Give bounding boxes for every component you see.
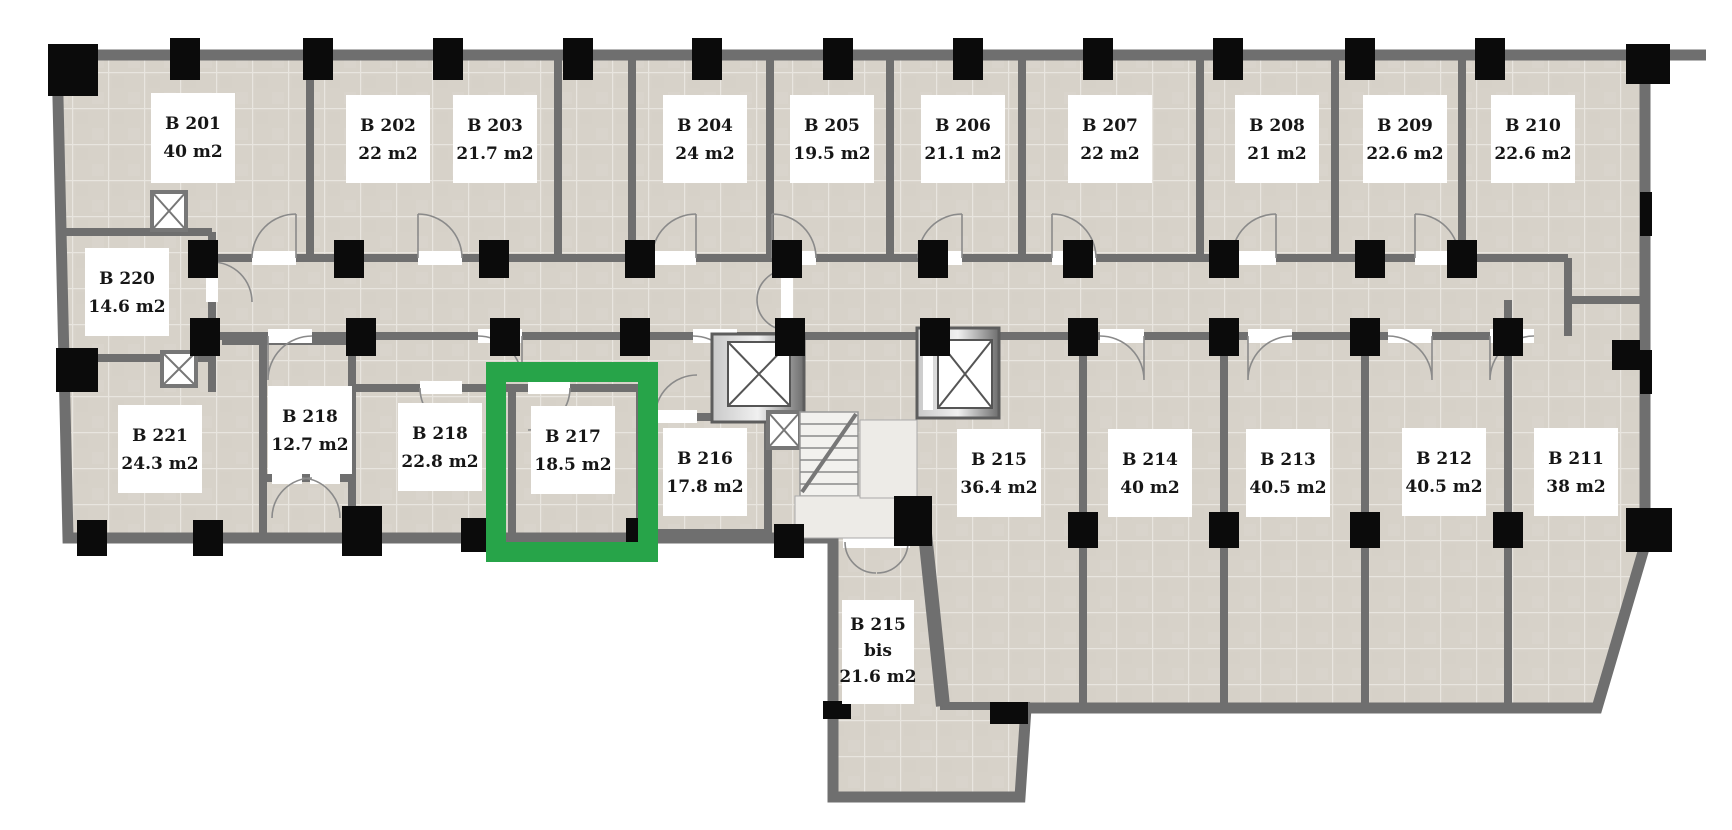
room-label-b206[interactable]: B 206 21.1 m2 — [921, 95, 1005, 183]
svg-text:38 m2: 38 m2 — [1546, 477, 1605, 497]
room-label-b218-small[interactable]: B 218 12.7 m2 — [268, 386, 352, 474]
svg-text:B 214: B 214 — [1122, 450, 1178, 470]
svg-text:B 216: B 216 — [677, 449, 733, 469]
room-label-b215[interactable]: B 215 36.4 m2 — [957, 429, 1041, 517]
svg-text:B 207: B 207 — [1082, 116, 1138, 136]
svg-text:B 202: B 202 — [360, 116, 416, 136]
svg-text:24 m2: 24 m2 — [675, 144, 734, 164]
svg-text:B 215: B 215 — [850, 615, 906, 635]
svg-text:40 m2: 40 m2 — [1120, 478, 1179, 498]
svg-text:B 208: B 208 — [1249, 116, 1305, 136]
svg-text:B 201: B 201 — [165, 114, 221, 134]
svg-text:21 m2: 21 m2 — [1247, 144, 1306, 164]
svg-text:40.5 m2: 40.5 m2 — [1405, 477, 1482, 497]
svg-text:B 218: B 218 — [282, 407, 338, 427]
room-label-b221[interactable]: B 221 24.3 m2 — [118, 405, 202, 493]
room-label-b214[interactable]: B 214 40 m2 — [1108, 429, 1192, 517]
svg-text:17.8 m2: 17.8 m2 — [666, 477, 743, 497]
svg-text:21.6 m2: 21.6 m2 — [839, 667, 916, 687]
room-label-b216[interactable]: B 216 17.8 m2 — [663, 428, 747, 516]
room-label-b210[interactable]: B 210 22.6 m2 — [1491, 95, 1575, 183]
svg-text:19.5 m2: 19.5 m2 — [793, 144, 870, 164]
room-label-b204[interactable]: B 204 24 m2 — [663, 95, 747, 183]
room-label-b211[interactable]: B 211 38 m2 — [1534, 428, 1618, 516]
room-label-b203[interactable]: B 203 21.7 m2 — [453, 95, 537, 183]
svg-text:22.8 m2: 22.8 m2 — [401, 452, 478, 472]
svg-text:B 213: B 213 — [1260, 450, 1316, 470]
svg-text:22.6 m2: 22.6 m2 — [1494, 144, 1571, 164]
svg-text:B 204: B 204 — [677, 116, 733, 136]
room-label-b220[interactable]: B 220 14.6 m2 — [85, 248, 169, 336]
room-label-b208[interactable]: B 208 21 m2 — [1235, 95, 1319, 183]
svg-text:24.3 m2: 24.3 m2 — [121, 454, 198, 474]
svg-text:B 212: B 212 — [1416, 449, 1472, 469]
svg-text:22.6 m2: 22.6 m2 — [1366, 144, 1443, 164]
room-label-b201[interactable]: B 201 40 m2 — [151, 93, 235, 183]
room-label-b207[interactable]: B 207 22 m2 — [1068, 95, 1152, 183]
svg-text:B 220: B 220 — [99, 269, 155, 289]
svg-text:22 m2: 22 m2 — [358, 144, 417, 164]
svg-text:B 203: B 203 — [467, 116, 523, 136]
room-label-b213[interactable]: B 213 40.5 m2 — [1246, 429, 1330, 517]
svg-text:B 205: B 205 — [804, 116, 860, 136]
svg-text:B 218: B 218 — [412, 424, 468, 444]
room-label-b205[interactable]: B 205 19.5 m2 — [790, 95, 874, 183]
svg-text:36.4 m2: 36.4 m2 — [960, 478, 1037, 498]
svg-text:B 206: B 206 — [935, 116, 991, 136]
room-label-b215-bis[interactable]: B 215 bis 21.6 m2 — [839, 600, 916, 704]
svg-text:B 211: B 211 — [1548, 449, 1604, 469]
floor-plan: B 201 40 m2 B 202 22 m2 B 203 21.7 m2 B … — [0, 0, 1732, 830]
room-label-b217[interactable]: B 217 18.5 m2 — [531, 406, 615, 494]
svg-text:21.1 m2: 21.1 m2 — [924, 144, 1001, 164]
svg-text:21.7 m2: 21.7 m2 — [456, 144, 533, 164]
floor-plan-page: B 201 40 m2 B 202 22 m2 B 203 21.7 m2 B … — [0, 0, 1732, 830]
svg-text:18.5 m2: 18.5 m2 — [534, 455, 611, 475]
svg-text:14.6 m2: 14.6 m2 — [88, 297, 165, 317]
svg-text:22 m2: 22 m2 — [1080, 144, 1139, 164]
svg-text:B 221: B 221 — [132, 426, 188, 446]
svg-text:B 215: B 215 — [971, 450, 1027, 470]
svg-text:12.7 m2: 12.7 m2 — [271, 435, 348, 455]
svg-text:B 209: B 209 — [1377, 116, 1433, 136]
room-label-b209[interactable]: B 209 22.6 m2 — [1363, 95, 1447, 183]
svg-text:B 217: B 217 — [545, 427, 601, 447]
svg-text:B 210: B 210 — [1505, 116, 1561, 136]
svg-text:bis: bis — [864, 641, 892, 661]
room-label-b202[interactable]: B 202 22 m2 — [346, 95, 430, 183]
svg-text:40 m2: 40 m2 — [163, 142, 222, 162]
room-label-b212[interactable]: B 212 40.5 m2 — [1402, 428, 1486, 516]
svg-text:40.5 m2: 40.5 m2 — [1249, 478, 1326, 498]
room-label-b218[interactable]: B 218 22.8 m2 — [398, 403, 482, 491]
